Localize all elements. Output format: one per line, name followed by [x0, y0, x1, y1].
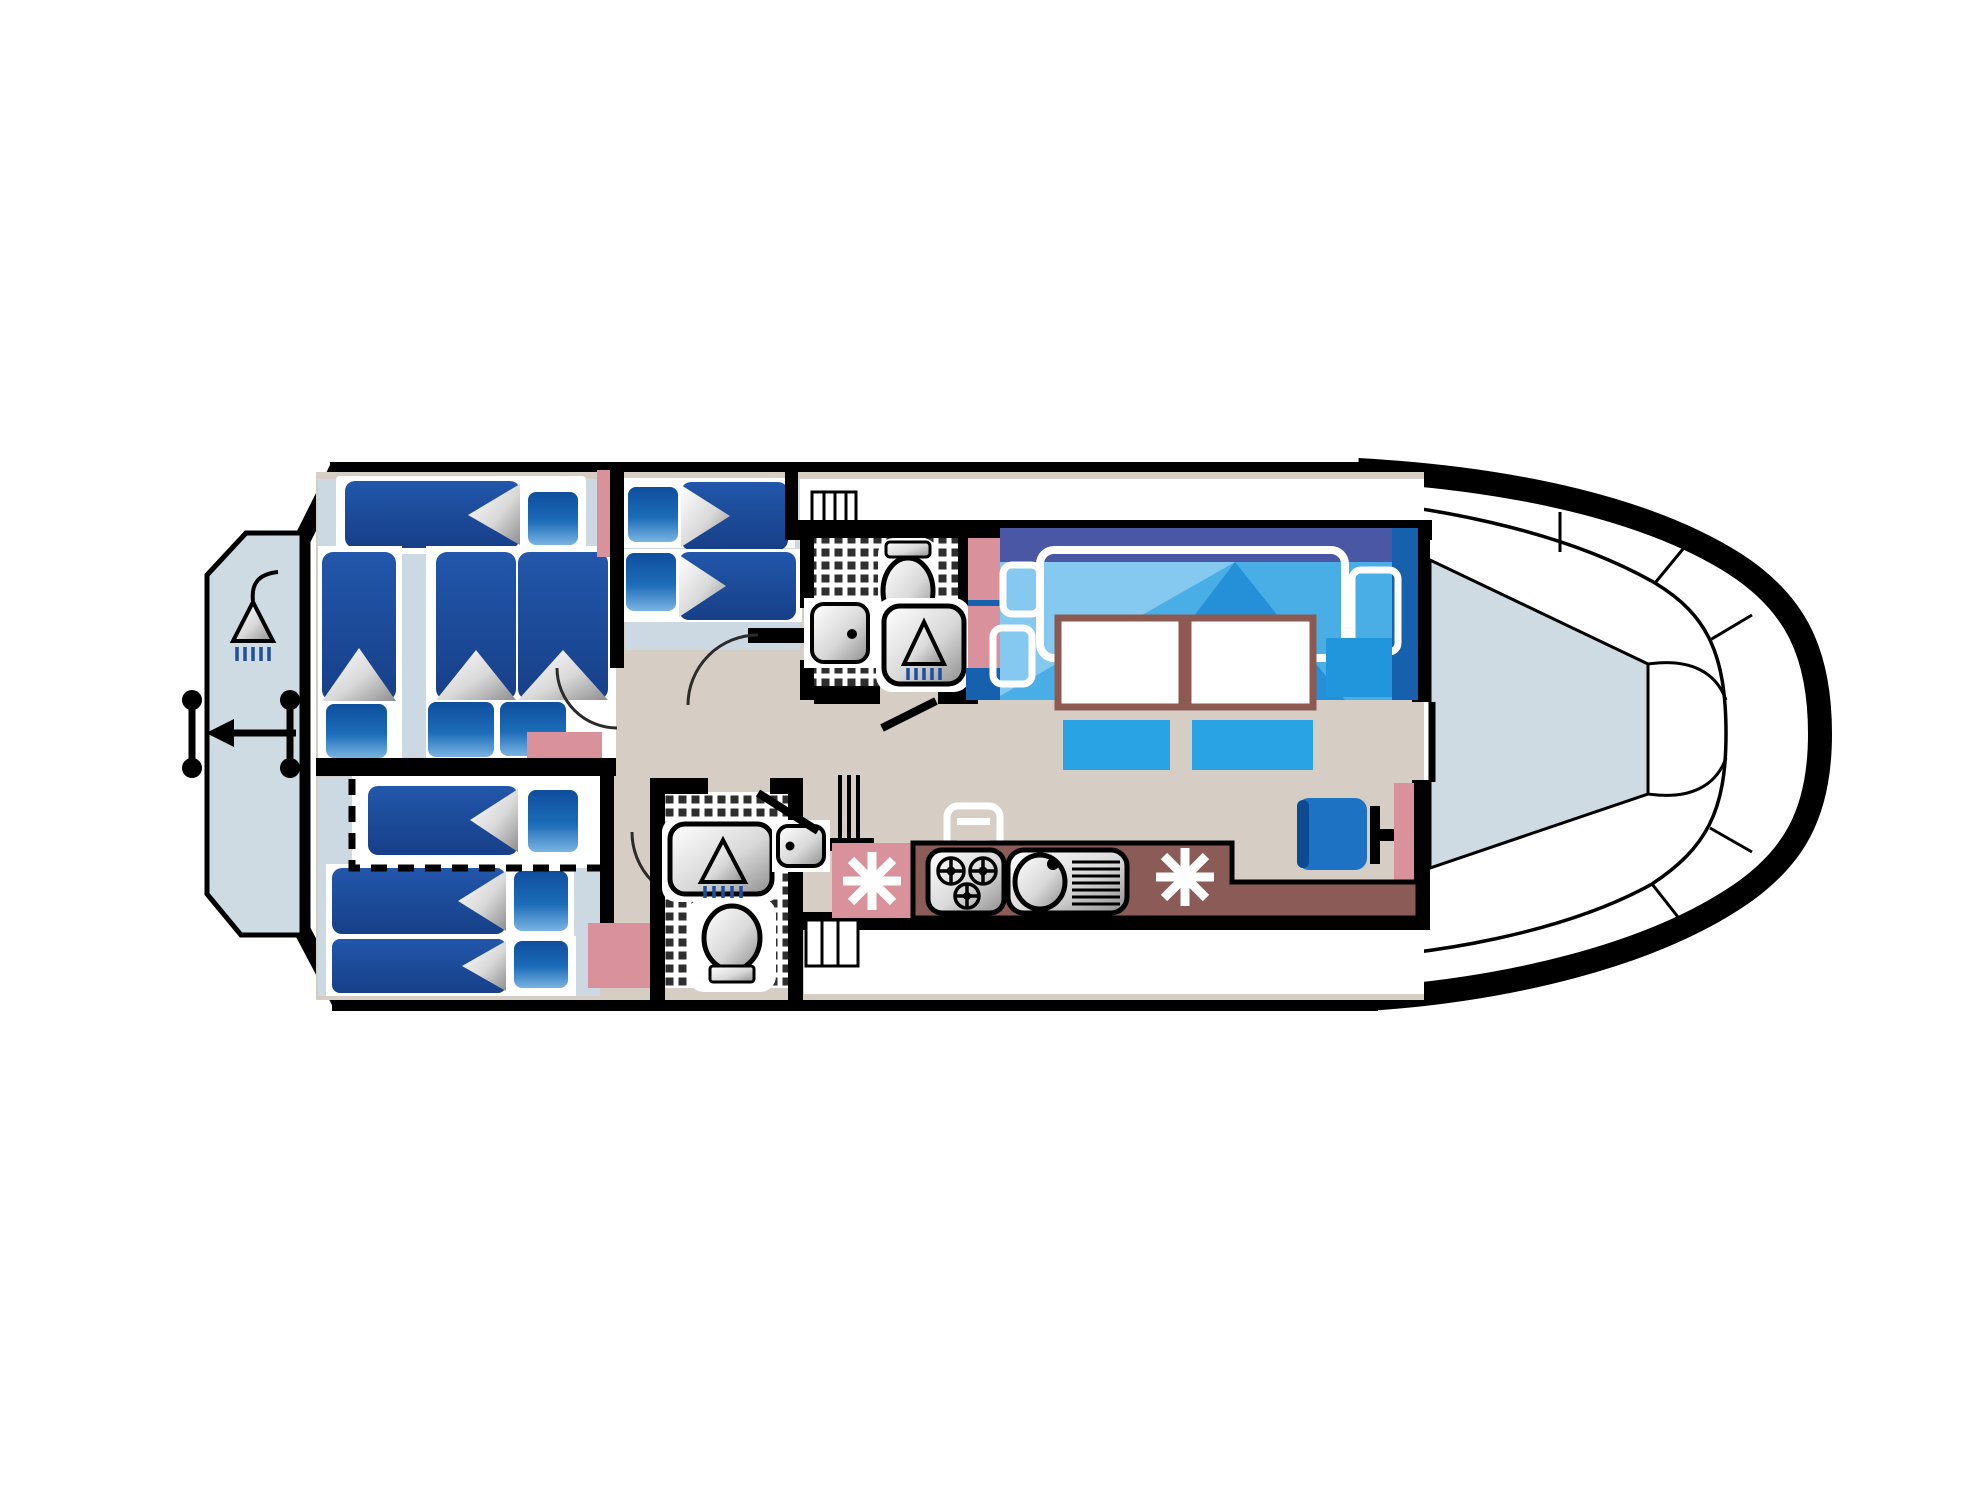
- cabinet: [588, 923, 660, 988]
- wall: [610, 470, 624, 668]
- folding-berth: [352, 772, 605, 868]
- salon-bench: [1192, 720, 1313, 770]
- aft-cabin: [318, 470, 616, 764]
- sink-unit-icon: [1008, 850, 1127, 913]
- aft-bathroom: [650, 778, 830, 1000]
- bed-pillow: [528, 790, 578, 852]
- mid-cabin: [622, 478, 802, 622]
- refrigerator-asterisk-icon: [1156, 848, 1214, 906]
- bed-pillow: [528, 492, 578, 545]
- bed-pillow: [514, 871, 568, 931]
- steering-column-icon: [1370, 806, 1380, 864]
- bedside-cabinets: [966, 538, 1002, 700]
- cabinet: [527, 732, 602, 758]
- cabinet: [968, 606, 1002, 668]
- helm-seat-edge: [1297, 800, 1309, 868]
- shower-icon: [884, 606, 964, 684]
- lower-cabin: [326, 772, 605, 996]
- side-cushion: [1326, 638, 1392, 697]
- deck-seam: [1710, 828, 1752, 852]
- side-deck-strip-bottom: [804, 930, 1424, 994]
- wall: [316, 758, 616, 776]
- bed-head-band: [1000, 528, 1418, 562]
- bed-pillow: [628, 487, 678, 542]
- shower-icon: [670, 824, 772, 898]
- stove-icon: [928, 850, 1004, 913]
- cabinet: [968, 538, 1000, 600]
- boarding-steps: [806, 920, 858, 966]
- side-deck-strip-top: [798, 479, 1424, 522]
- deck-seam: [1710, 615, 1752, 640]
- cabinet-divider: [968, 600, 1000, 606]
- deck-seam: [1655, 549, 1683, 583]
- bow-tip-line: [1648, 758, 1726, 795]
- salon-bench: [1063, 720, 1170, 770]
- floor-plan-canvas: [0, 0, 1980, 1485]
- washbasin-icon: [812, 604, 868, 662]
- salon-table: [1058, 618, 1182, 707]
- toilet-icon: [704, 906, 760, 982]
- bow-tip-line: [1648, 663, 1726, 700]
- wall: [600, 776, 614, 930]
- stern-platform: [182, 533, 302, 935]
- boat-floor-plan: [0, 0, 1980, 1485]
- bed-pillow: [626, 553, 676, 611]
- bed-pillow: [428, 702, 494, 757]
- refrigerator-asterisk-icon: [843, 852, 901, 910]
- bed-pillow: [514, 941, 568, 988]
- cabinet: [1394, 783, 1414, 880]
- bow-walkway: [1430, 560, 1726, 868]
- salon-table: [1188, 618, 1313, 707]
- ladder-icon: [182, 690, 202, 778]
- deck-seam: [1652, 884, 1678, 917]
- bed-pillow: [326, 704, 387, 758]
- bow-walkway-floor: [1430, 560, 1648, 868]
